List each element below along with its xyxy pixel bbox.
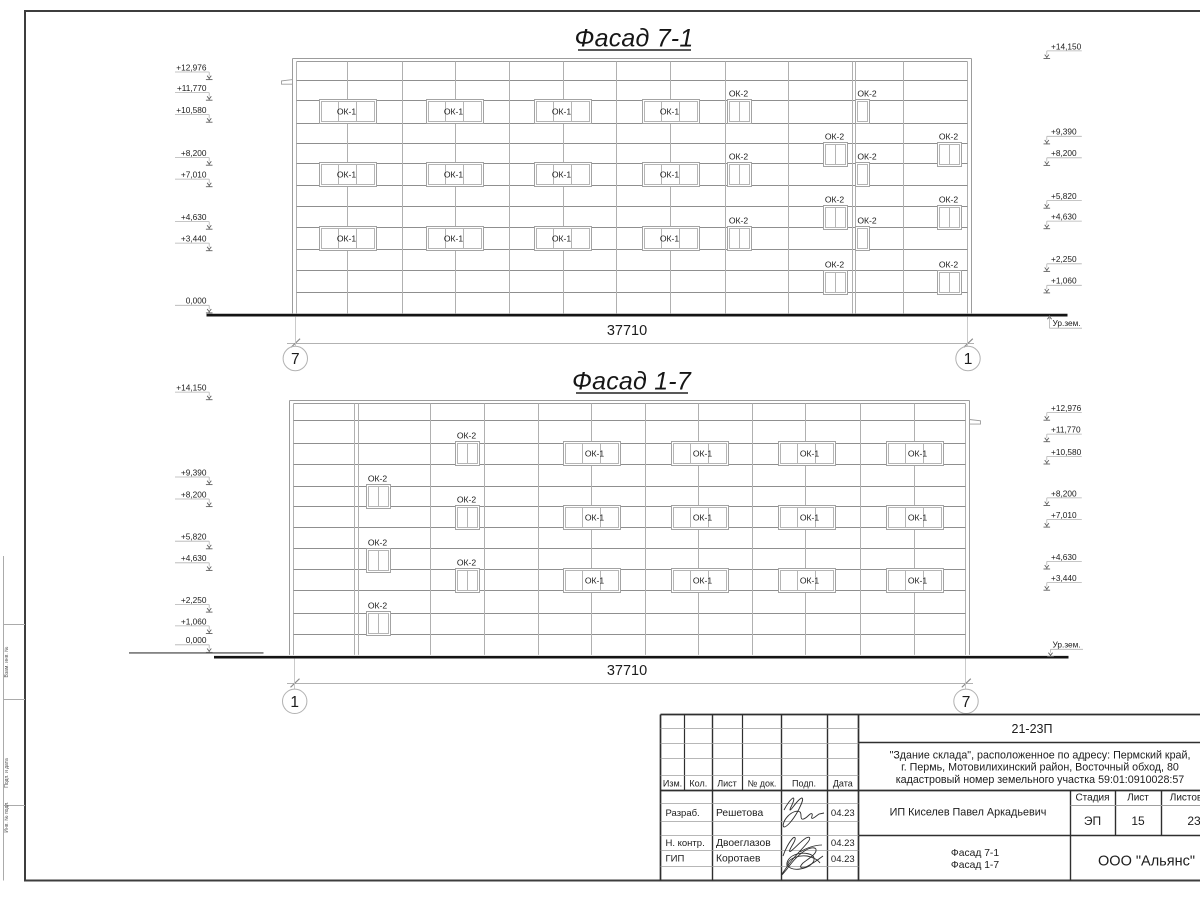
- svg-text:04.23: 04.23: [831, 838, 855, 849]
- svg-text:г. Пермь, Мотовилихинский райо: г. Пермь, Мотовилихинский район, Восточн…: [901, 762, 1179, 774]
- svg-text:37710: 37710: [607, 663, 647, 679]
- svg-text:Ур.зем.: Ур.зем.: [1053, 640, 1081, 650]
- svg-text:+9,390: +9,390: [181, 467, 207, 477]
- svg-text:ООО "Альянс": ООО "Альянс": [1098, 854, 1195, 870]
- svg-text:+12,976: +12,976: [1051, 403, 1082, 413]
- svg-text:23: 23: [1187, 814, 1200, 828]
- svg-text:кадастровый номер земельного у: кадастровый номер земельного участка 59:…: [896, 774, 1185, 786]
- svg-text:Ур.зем.: Ур.зем.: [1053, 318, 1081, 328]
- svg-text:37710: 37710: [607, 323, 647, 339]
- svg-text:Листов: Листов: [1170, 793, 1200, 804]
- svg-text:+11,770: +11,770: [177, 83, 207, 93]
- svg-text:Инв. № подл.: Инв. № подл.: [4, 801, 10, 832]
- svg-text:Лист: Лист: [717, 778, 737, 788]
- svg-text:+8,200: +8,200: [181, 148, 207, 158]
- svg-text:"Здание склада", расположенное: "Здание склада", расположенное по адресу…: [890, 749, 1191, 761]
- svg-text:0,000: 0,000: [186, 296, 207, 306]
- svg-text:Фасад 1-7: Фасад 1-7: [572, 368, 692, 396]
- svg-text:Стадия: Стадия: [1075, 793, 1109, 804]
- svg-text:+1,060: +1,060: [181, 616, 207, 626]
- svg-text:+7,010: +7,010: [181, 170, 207, 180]
- svg-text:ЭП: ЭП: [1084, 814, 1101, 828]
- svg-text:+4,630: +4,630: [181, 553, 207, 563]
- svg-text:+14,150: +14,150: [176, 383, 207, 393]
- svg-text:№ док.: № док.: [748, 778, 777, 788]
- svg-text:Н. контр.: Н. контр.: [666, 838, 705, 849]
- svg-text:Изм.: Изм.: [663, 778, 682, 788]
- svg-text:1: 1: [290, 694, 299, 711]
- svg-text:+10,580: +10,580: [176, 105, 207, 115]
- svg-text:Решетова: Решетова: [716, 808, 763, 819]
- svg-text:Взам. инв. №: Взам. инв. №: [4, 647, 10, 678]
- svg-text:+3,440: +3,440: [1051, 573, 1077, 583]
- svg-text:+8,200: +8,200: [1051, 488, 1077, 498]
- svg-text:Коротаев: Коротаев: [716, 854, 761, 865]
- svg-text:Фасад 1-7: Фасад 1-7: [951, 860, 999, 871]
- svg-text:+4,630: +4,630: [1051, 552, 1077, 562]
- svg-text:+14,150: +14,150: [1051, 41, 1082, 51]
- svg-text:ГИП: ГИП: [666, 854, 685, 865]
- svg-text:+8,200: +8,200: [181, 489, 207, 499]
- svg-text:+2,250: +2,250: [1051, 254, 1077, 264]
- svg-text:+4,630: +4,630: [1051, 212, 1077, 222]
- svg-text:Фасад 7-1: Фасад 7-1: [951, 848, 999, 859]
- svg-text:15: 15: [1131, 814, 1145, 828]
- svg-text:0,000: 0,000: [186, 635, 207, 645]
- svg-text:Подп.: Подп.: [792, 778, 816, 788]
- svg-text:Лист: Лист: [1127, 793, 1149, 804]
- svg-text:7: 7: [291, 351, 300, 368]
- svg-text:Фасад 7-1: Фасад 7-1: [575, 25, 694, 53]
- svg-text:+5,820: +5,820: [1051, 191, 1077, 201]
- svg-text:Дата: Дата: [833, 778, 853, 788]
- svg-text:+5,820: +5,820: [181, 532, 207, 542]
- svg-text:+9,390: +9,390: [1051, 127, 1077, 137]
- svg-text:21-23П: 21-23П: [1012, 722, 1053, 736]
- svg-text:ИП Киселев Павел Аркадьевич: ИП Киселев Павел Аркадьевич: [890, 807, 1047, 819]
- svg-text:+11,770: +11,770: [1051, 425, 1081, 435]
- svg-text:Кол.: Кол.: [689, 778, 707, 788]
- svg-text:Разраб.: Разраб.: [666, 808, 700, 819]
- svg-text:7: 7: [962, 694, 971, 711]
- svg-text:+7,010: +7,010: [1051, 510, 1077, 520]
- svg-text:Подп. и дата: Подп. и дата: [4, 758, 10, 788]
- svg-text:1: 1: [964, 351, 973, 368]
- svg-text:+2,250: +2,250: [181, 595, 207, 605]
- svg-text:Двоеглазов: Двоеглазов: [716, 838, 771, 849]
- svg-text:+12,976: +12,976: [176, 62, 207, 72]
- svg-text:+10,580: +10,580: [1051, 447, 1082, 457]
- svg-text:04.23: 04.23: [831, 808, 855, 819]
- svg-text:+3,440: +3,440: [181, 234, 207, 244]
- svg-text:+1,060: +1,060: [1051, 276, 1077, 286]
- svg-text:+4,630: +4,630: [181, 212, 207, 222]
- svg-text:04.23: 04.23: [831, 854, 855, 865]
- svg-text:+8,200: +8,200: [1051, 148, 1077, 158]
